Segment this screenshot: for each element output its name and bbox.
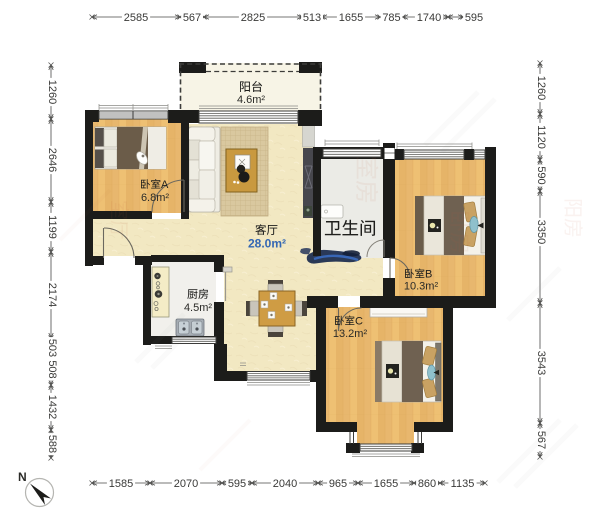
svg-text:595: 595 [228,478,246,490]
svg-text:1432: 1432 [46,395,58,419]
svg-text:1260: 1260 [535,76,547,100]
svg-text:588: 588 [46,435,58,453]
svg-text:2585: 2585 [124,12,148,24]
svg-text:2646: 2646 [46,148,58,172]
svg-text:1655: 1655 [374,478,398,490]
svg-text:10.3m²: 10.3m² [404,281,439,293]
svg-text:860: 860 [418,478,436,490]
svg-text:1260: 1260 [46,80,58,104]
svg-text:2070: 2070 [174,478,198,490]
svg-text:28.0m²: 28.0m² [248,237,286,251]
svg-text:1740: 1740 [417,12,441,24]
svg-text:4.5m²: 4.5m² [184,302,212,314]
svg-text:508: 508 [46,360,58,378]
svg-text:13.2m²: 13.2m² [333,328,368,340]
svg-text:6.8m²: 6.8m² [141,192,169,204]
svg-text:503: 503 [46,339,58,357]
svg-text:4.6m²: 4.6m² [237,94,265,106]
svg-text:1120: 1120 [535,125,547,149]
svg-text:595: 595 [465,12,483,24]
svg-text:2040: 2040 [273,478,297,490]
svg-text:1135: 1135 [451,478,475,490]
svg-text:1199: 1199 [46,215,58,239]
svg-text:A: A [161,179,169,191]
svg-text:567: 567 [183,12,201,24]
svg-text:1585: 1585 [109,478,133,490]
svg-text:1655: 1655 [339,12,363,24]
svg-text:2825: 2825 [241,12,265,24]
svg-text:3350: 3350 [535,220,547,244]
svg-text:C: C [355,316,363,328]
svg-text:965: 965 [329,478,347,490]
svg-text:2174: 2174 [46,283,58,307]
svg-text:513: 513 [303,12,321,24]
svg-text:N: N [18,470,27,484]
svg-text:590: 590 [535,166,547,184]
svg-text:785: 785 [382,12,400,24]
svg-text:3543: 3543 [535,351,547,375]
svg-text:B: B [425,269,432,281]
